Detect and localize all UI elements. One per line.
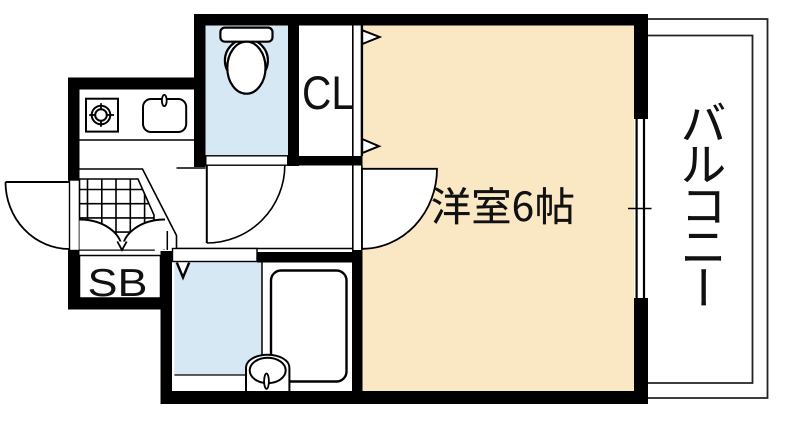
svg-text:CL: CL [302, 66, 354, 119]
svg-text:SB: SB [88, 262, 148, 305]
